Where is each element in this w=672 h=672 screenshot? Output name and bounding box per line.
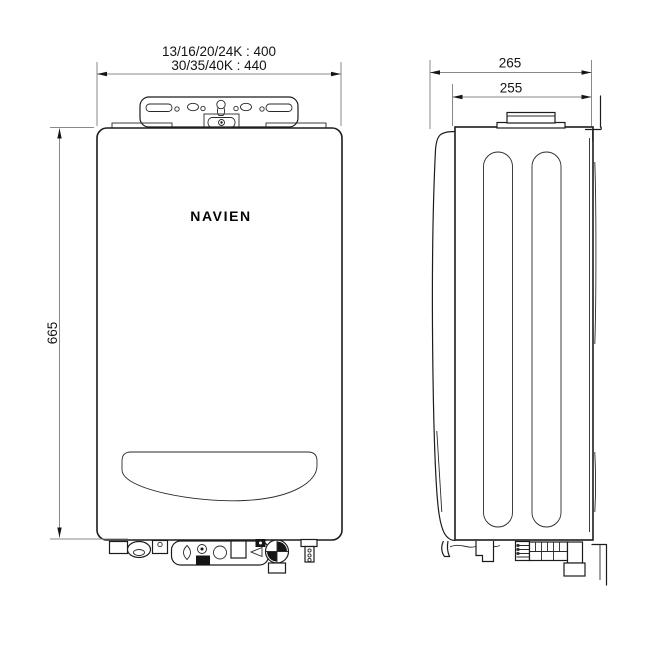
- side-front-panel-profile: [432, 132, 455, 541]
- height-dimension-label: 665: [45, 322, 60, 345]
- drain-bracket: [301, 540, 317, 563]
- flue-cap: [497, 113, 565, 129]
- front-view: NAVIEN: [97, 97, 342, 573]
- width-dimension-label-line2: 30/35/40K : 440: [171, 58, 266, 73]
- front-cabinet: [97, 128, 342, 540]
- side-view: [432, 96, 606, 585]
- back-panel-seams: [595, 162, 596, 512]
- valve-block: [530, 542, 568, 561]
- front-bottom-fittings: [110, 539, 318, 573]
- side-bottom-fittings: [442, 541, 585, 576]
- threaded-fitting: [516, 542, 530, 561]
- depth-outer-dimension-label: 265: [499, 56, 522, 71]
- depth-inner-dimension-label: 255: [500, 81, 523, 96]
- gas-valve: [266, 540, 289, 573]
- side-cabinet: [455, 127, 593, 540]
- pipe-fitting: [128, 542, 151, 558]
- width-dimension-label-line1: 13/16/20/24K : 400: [162, 44, 276, 59]
- diagram-canvas: NAVIEN: [0, 0, 672, 672]
- wall-bracket-bottom: [592, 545, 607, 586]
- boiler-dimension-diagram: NAVIEN: [0, 0, 672, 672]
- navien-logo: NAVIEN: [190, 208, 251, 224]
